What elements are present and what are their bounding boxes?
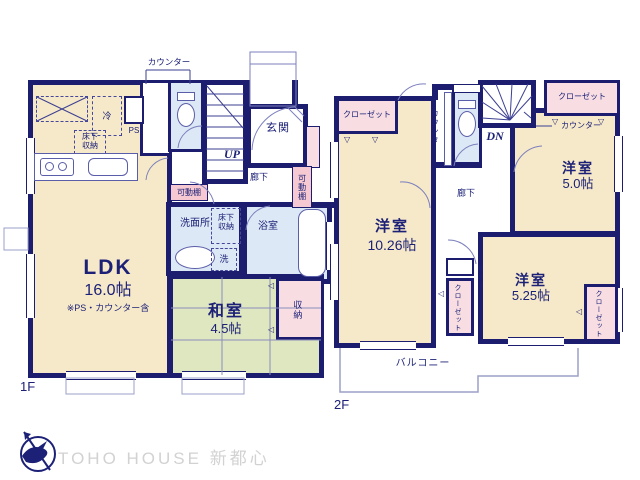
yoshitsu-a-size: 10.26帖	[344, 237, 440, 253]
window	[330, 142, 339, 198]
ldk-size: 16.0帖	[52, 282, 164, 300]
room-stairs-1f	[202, 80, 248, 184]
closet-ne-label: クローゼット	[552, 92, 612, 101]
window	[508, 337, 564, 346]
door-mark-icon: ▽	[372, 136, 378, 144]
wall-segment	[292, 80, 298, 108]
washitsu-size: 4.5帖	[186, 322, 266, 337]
room-label-yoshitsu-a: 洋室 10.26帖	[344, 218, 440, 253]
room-label-yoshitsu-c: 洋室 5.25帖	[488, 272, 574, 304]
room-stairs-2f	[478, 80, 536, 128]
bathtub	[298, 209, 326, 277]
logo-bird-icon	[16, 426, 60, 476]
toilet-tank	[177, 92, 195, 101]
movable-shelf-box: 可動棚	[292, 166, 312, 208]
floorplan-canvas: 可動棚 可動棚 LDK 16.0帖 ※PS・カウンター含 和室 4.5帖 玄関 …	[0, 0, 640, 480]
door-mark-icon: ◁	[576, 308, 582, 316]
yoshitsu-b-size: 5.0帖	[540, 177, 616, 192]
counter-strip-2f	[444, 92, 452, 166]
wash-basin	[175, 246, 215, 269]
refrigerator-label: 冷	[101, 111, 113, 121]
rouka-label-1f: 廊下	[242, 172, 276, 182]
floor2-label: 2F	[334, 398, 362, 413]
window	[66, 371, 136, 380]
counter-label-1f: カウンター	[140, 58, 198, 68]
washitsu-name: 和室	[186, 303, 266, 321]
room-label-washitsu: 和室 4.5帖	[186, 303, 266, 337]
door-mark-icon: ▽	[344, 136, 350, 144]
rouka-label-2f: 廊下	[450, 188, 482, 198]
brand-logo-text: TOHO HOUSE 新都心	[58, 444, 270, 469]
kitchen-sink	[88, 158, 128, 176]
movable-shelf-label: 可動棚	[297, 174, 306, 201]
shuunou-label: 収納	[292, 290, 302, 330]
yokushitsu-label: 浴室	[248, 221, 288, 233]
genkan-label: 玄関	[254, 122, 302, 135]
stairs-dn-label: DN	[482, 130, 508, 144]
closet-se-label: クローゼット	[594, 288, 602, 340]
senmenjo-label: 洗面所	[172, 218, 218, 230]
toilet-bowl	[177, 103, 195, 127]
room-label-ldk: LDK 16.0帖 ※PS・カウンター含	[52, 256, 164, 313]
balcony-outline	[340, 348, 578, 392]
window	[182, 371, 246, 380]
toilet-bowl	[458, 111, 476, 137]
door-mark-icon: ▽	[552, 118, 558, 126]
door-mark-icon: ◁	[438, 290, 444, 298]
kitchen-cabinet	[36, 96, 88, 122]
pipe-space-label: PS	[123, 126, 145, 135]
closet-nw-label: クローゼット	[340, 110, 394, 119]
door-mark-icon: ▽	[598, 118, 604, 126]
wall-segment	[244, 80, 250, 108]
toilet-tank	[458, 100, 476, 109]
counter-label-2f-v: カウンター	[430, 98, 439, 164]
ldk-note: ※PS・カウンター含	[52, 303, 164, 313]
stove-burner	[58, 162, 67, 171]
door-mark-icon: ◁	[268, 282, 274, 290]
floor1-label: 1F	[20, 380, 46, 395]
window	[330, 244, 339, 300]
movable-shelf-label: 可動棚	[177, 188, 201, 197]
underfloor-storage-wash-label: 床下収納	[216, 213, 236, 231]
shoe-cabinet	[306, 126, 320, 168]
yoshitsu-c-name: 洋室	[488, 272, 574, 288]
underfloor-storage-kitchen-label: 床下収納	[79, 132, 101, 150]
door-mark-icon: ◁	[268, 326, 274, 334]
stove-burner	[45, 162, 54, 171]
yoshitsu-b-name: 洋室	[540, 160, 616, 176]
pipe-space-box	[124, 96, 144, 124]
ldk-name: LDK	[52, 256, 164, 280]
yoshitsu-a-name: 洋室	[344, 218, 440, 235]
balcony-label: バルコニー	[388, 358, 458, 370]
room-label-yoshitsu-b: 洋室 5.0帖	[540, 160, 616, 192]
movable-shelf-box: 可動棚	[170, 184, 208, 201]
wall-segment	[436, 162, 482, 168]
eps-label: EPS	[476, 258, 484, 298]
window	[26, 254, 35, 318]
stairs-up-label: UP	[218, 148, 246, 162]
eps-box	[446, 258, 474, 276]
washing-machine-label: 洗	[218, 254, 230, 264]
closet-mid-label: クローゼット	[453, 282, 461, 334]
room-genkan	[246, 104, 308, 168]
window	[454, 84, 480, 93]
yoshitsu-c-size: 5.25帖	[488, 289, 574, 304]
window	[360, 341, 416, 350]
